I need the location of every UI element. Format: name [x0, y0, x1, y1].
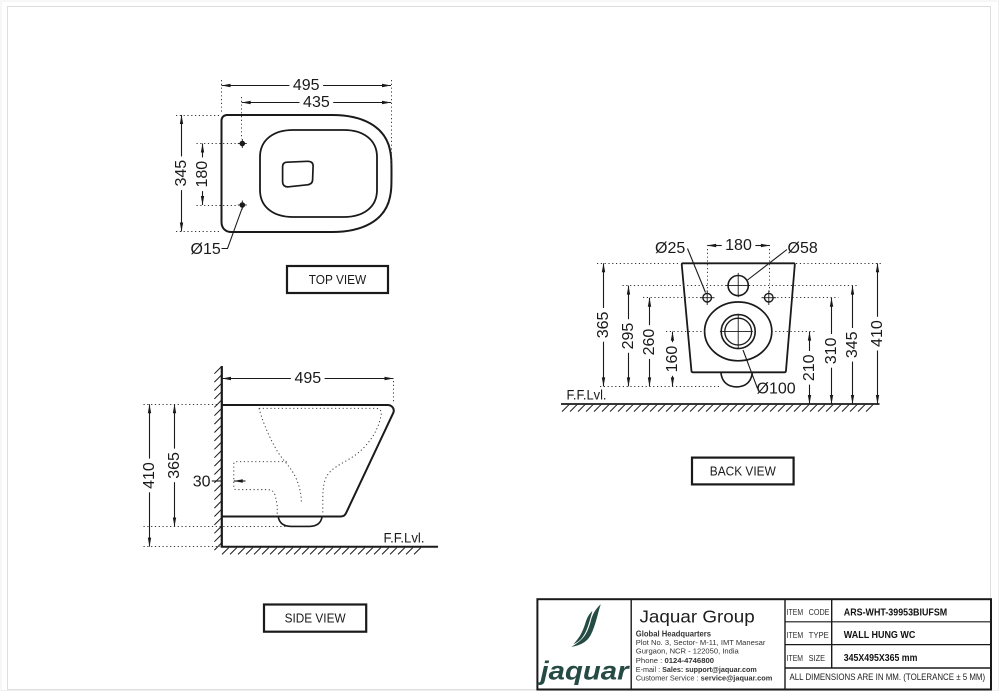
svg-text:345: 345: [844, 331, 861, 358]
svg-text:ITEM: ITEM: [787, 630, 804, 640]
svg-text:ITEM: ITEM: [787, 653, 803, 663]
svg-text:Ø100: Ø100: [757, 381, 796, 398]
svg-text:F.F.Lvl.: F.F.Lvl.: [384, 531, 425, 546]
svg-text:ITEM: ITEM: [787, 607, 804, 617]
svg-text:410: 410: [869, 320, 886, 347]
svg-text:SIZE: SIZE: [809, 653, 826, 663]
svg-text:310: 310: [823, 337, 840, 364]
svg-text:Jaquar Group: Jaquar Group: [640, 606, 755, 626]
svg-text:345X495X365 mm: 345X495X365 mm: [844, 653, 918, 664]
svg-text:435: 435: [303, 94, 330, 111]
svg-text:365: 365: [595, 311, 612, 338]
svg-text:jaquar: jaquar: [537, 656, 630, 686]
svg-text:ALL DIMENSIONS ARE IN MM. (TOL: ALL DIMENSIONS ARE IN MM. (TOLERANCE ± 5…: [790, 671, 986, 682]
svg-text:30: 30: [193, 474, 211, 491]
svg-text:BACK VIEW: BACK VIEW: [710, 465, 776, 479]
svg-text:CODE: CODE: [809, 607, 830, 617]
svg-text:495: 495: [294, 370, 321, 387]
svg-text:Ø58: Ø58: [788, 240, 818, 257]
svg-text:410: 410: [141, 462, 158, 489]
svg-text:210: 210: [801, 354, 818, 381]
svg-text:345: 345: [173, 160, 190, 187]
svg-text:SIDE VIEW: SIDE VIEW: [285, 612, 346, 626]
svg-text:WALL HUNG WC: WALL HUNG WC: [844, 630, 916, 641]
svg-text:ARS-WHT-39953BIUFSM: ARS-WHT-39953BIUFSM: [844, 607, 947, 618]
svg-text:Customer Service : service@jaq: Customer Service : service@jaquar.com: [636, 674, 773, 683]
svg-text:Plot No. 3, Sector- M-11, IMT: Plot No. 3, Sector- M-11, IMT Manesar: [636, 638, 766, 647]
svg-text:TOP VIEW: TOP VIEW: [309, 273, 367, 287]
svg-text:F.F.Lvl.: F.F.Lvl.: [567, 388, 607, 403]
svg-text:Ø15: Ø15: [191, 241, 221, 258]
svg-text:260: 260: [641, 329, 658, 356]
svg-text:295: 295: [620, 323, 637, 350]
svg-text:Gurgaon, NCR - 122050, India: Gurgaon, NCR - 122050, India: [636, 647, 740, 656]
svg-text:E-mail : Sales: support@jaquar: E-mail : Sales: support@jaquar.com: [636, 665, 757, 674]
svg-text:Ø25: Ø25: [655, 240, 685, 257]
svg-text:180: 180: [194, 161, 211, 188]
svg-text:495: 495: [293, 77, 320, 94]
svg-text:180: 180: [725, 237, 752, 254]
svg-text:TYPE: TYPE: [809, 630, 829, 640]
svg-text:365: 365: [166, 452, 183, 479]
svg-text:160: 160: [664, 346, 681, 373]
